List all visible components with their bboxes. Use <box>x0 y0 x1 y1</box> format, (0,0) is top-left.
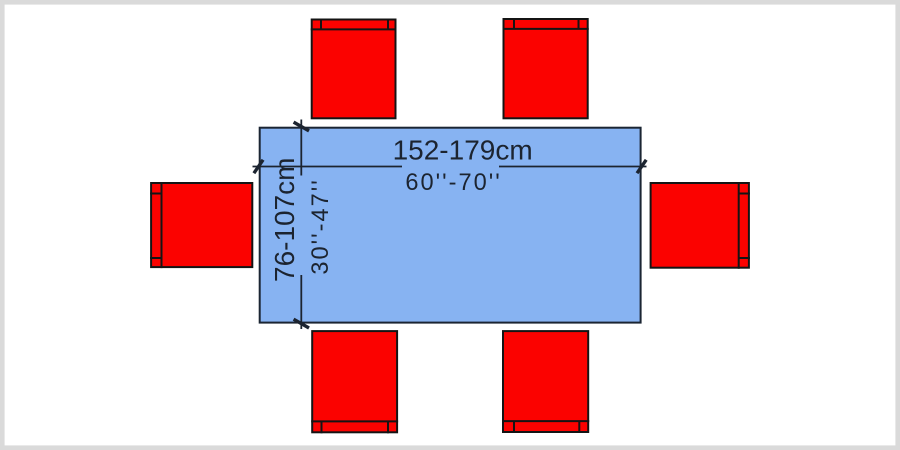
svg-text:30''-47'': 30''-47'' <box>308 178 334 274</box>
svg-text:152-179cm: 152-179cm <box>393 135 533 166</box>
svg-text:60''-70'': 60''-70'' <box>405 170 501 196</box>
svg-text:76-107cm: 76-107cm <box>269 157 300 282</box>
